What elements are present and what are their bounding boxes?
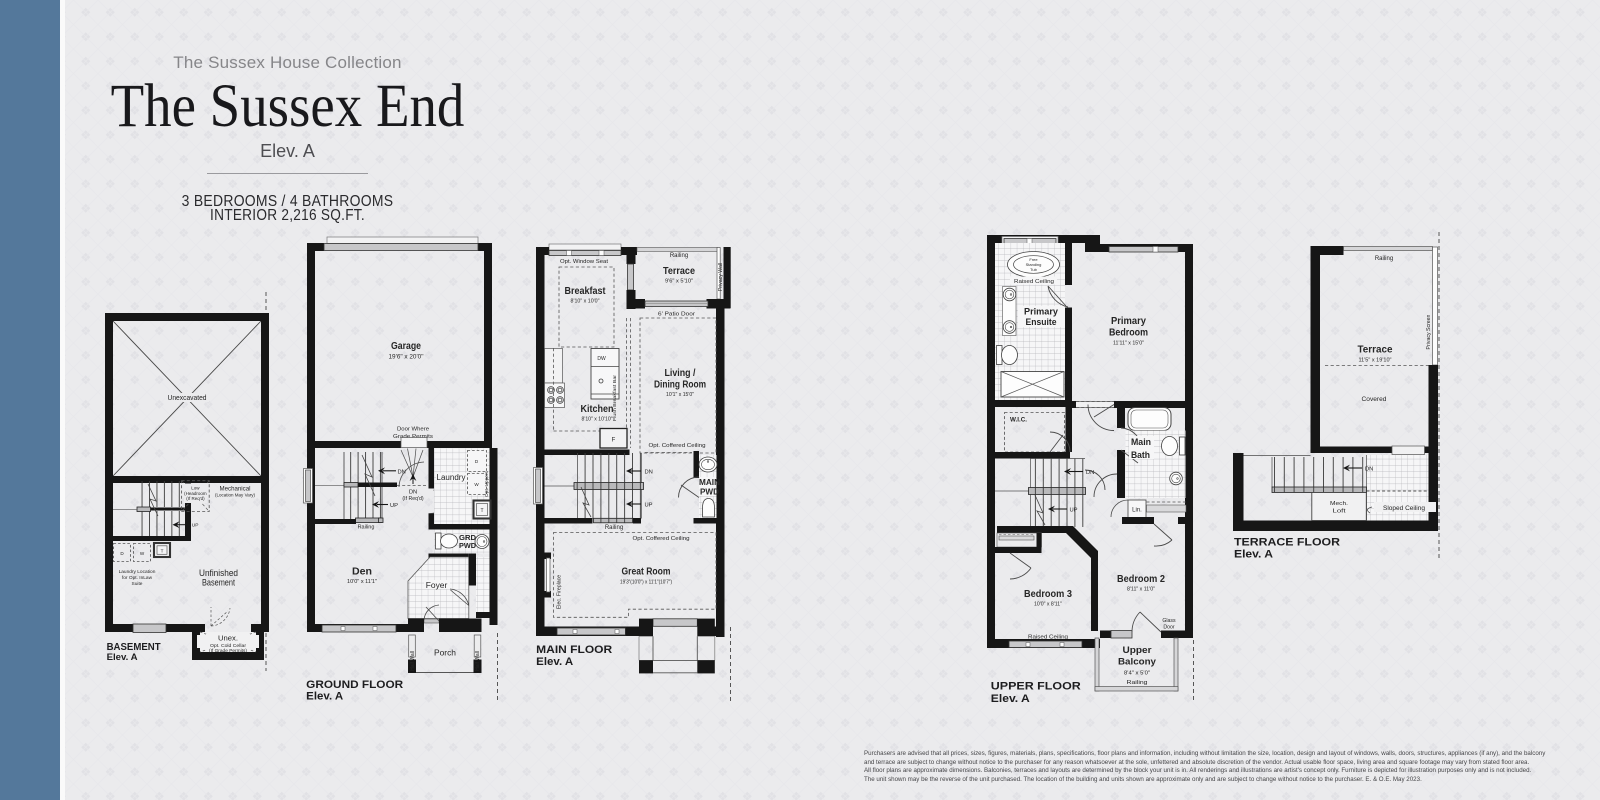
svg-text:DN: DN [645,470,653,476]
svg-text:Half Wall: Half Wall [410,651,416,671]
svg-text:PWD: PWD [700,488,719,497]
svg-text:Lin.: Lin. [1132,508,1142,514]
svg-text:Terrace: Terrace [663,266,695,277]
svg-text:DN: DN [1086,470,1094,476]
svg-text:Low: Low [191,485,200,490]
svg-text:Tub: Tub [1030,267,1038,272]
svg-text:Elev. A: Elev. A [991,693,1030,705]
svg-text:Breakfast: Breakfast [565,286,607,297]
svg-text:Basement: Basement [202,578,235,588]
svg-text:W.I.C.: W.I.C. [1010,417,1027,424]
svg-text:W: W [140,551,145,556]
svg-text:Laundry: Laundry [437,473,466,482]
svg-text:MAIN FLOOR: MAIN FLOOR [536,644,612,656]
svg-text:Living /: Living / [665,368,696,379]
svg-text:Railing: Railing [670,253,688,259]
svg-text:Laundry Location: Laundry Location [119,569,156,575]
svg-text:for Opt. InLaw: for Opt. InLaw [122,575,153,581]
svg-text:Elev. A: Elev. A [1234,549,1273,561]
svg-text:Unex.: Unex. [218,634,238,643]
svg-text:Door: Door [1163,625,1175,631]
svg-text:9'6" x 5'10": 9'6" x 5'10" [665,279,693,285]
svg-text:Half Wall: Half Wall [475,651,481,671]
svg-text:(If Grade Permits): (If Grade Permits) [209,648,247,654]
svg-text:Ensuite: Ensuite [1026,316,1057,327]
svg-text:Raised Ceiling: Raised Ceiling [1014,279,1054,285]
svg-text:Covered: Covered [1362,396,1387,403]
svg-text:Main: Main [1131,437,1151,447]
svg-text:Mech.: Mech. [1330,501,1348,507]
svg-text:Privacy Screen: Privacy Screen [1426,314,1432,349]
svg-text:Elev. A: Elev. A [536,656,573,668]
svg-text:19'3"(10'0") x 11'1"(10'7"): 19'3"(10'0") x 11'1"(10'7") [620,580,672,586]
svg-text:Opt. Window Seat: Opt. Window Seat [560,259,608,265]
svg-text:(Location May Vary): (Location May Vary) [215,493,255,498]
svg-text:Unfinished: Unfinished [199,568,238,578]
svg-text:Opt. Uppers: Opt. Uppers [484,470,490,496]
svg-text:Porch: Porch [434,649,456,658]
svg-text:T: T [161,549,164,554]
svg-text:Elec. Fireplace: Elec. Fireplace [557,575,563,609]
svg-text:8'4" x 5'0": 8'4" x 5'0" [1124,671,1150,677]
svg-text:Upper: Upper [1123,644,1152,655]
svg-text:UP: UP [645,503,653,509]
svg-text:Door Where: Door Where [397,427,429,433]
svg-text:DW: DW [597,356,606,362]
svg-text:Railing: Railing [605,525,623,531]
svg-text:Foyer: Foyer [426,581,448,590]
svg-text:Privacy Wall: Privacy Wall [718,263,724,291]
svg-text:DN: DN [1365,467,1373,473]
svg-text:11'5" x 19'10": 11'5" x 19'10" [1359,358,1392,364]
svg-text:UPPER FLOOR: UPPER FLOOR [991,680,1081,692]
svg-text:Loft: Loft [1333,509,1347,515]
svg-text:GROUND FLOOR: GROUND FLOOR [306,679,403,691]
svg-text:Garage: Garage [391,341,421,352]
svg-text:10'0" x 11'1": 10'0" x 11'1" [347,579,377,585]
svg-text:19'6" x 20'0": 19'6" x 20'0" [389,355,424,361]
svg-text:6' Patio Door: 6' Patio Door [658,312,695,318]
svg-text:Bedroom 3: Bedroom 3 [1024,589,1073,600]
svg-text:Bedroom: Bedroom [1109,328,1148,339]
svg-text:MAIN: MAIN [699,478,720,487]
svg-text:Terrace: Terrace [1358,345,1394,356]
svg-text:Bath: Bath [1131,450,1150,460]
svg-text:Primary: Primary [1111,316,1147,327]
svg-text:PWD: PWD [459,541,476,550]
svg-text:Glass: Glass [1162,618,1176,624]
svg-text:8'11" x 11'0": 8'11" x 11'0" [1127,587,1155,593]
svg-text:(Headroom: (Headroom [184,491,207,496]
svg-text:Great Room: Great Room [622,567,671,578]
svg-text:Den: Den [352,567,372,578]
svg-text:Railing: Railing [1375,256,1393,262]
svg-text:Dining Room: Dining Room [654,380,706,391]
svg-text:8'10" x 10'0": 8'10" x 10'0" [571,299,600,305]
svg-text:Bedroom 2: Bedroom 2 [1117,574,1166,585]
svg-text:11'11" x 15'0": 11'11" x 15'0" [1113,341,1144,347]
svg-text:D: D [120,551,124,556]
svg-text:Suite: Suite [132,581,143,587]
svg-text:Primary: Primary [1024,306,1059,317]
svg-text:UP: UP [1070,508,1078,514]
svg-text:(If Req'd): (If Req'd) [402,496,423,502]
svg-text:F: F [612,438,616,444]
svg-text:Elev. A: Elev. A [306,691,343,703]
svg-text:DN: DN [409,490,417,496]
svg-text:Opt. Coffered Ceiling: Opt. Coffered Ceiling [649,443,706,449]
svg-text:Kitchen: Kitchen [581,404,614,415]
svg-text:10'1" x 15'0": 10'1" x 15'0" [666,392,694,398]
svg-text:W: W [474,482,479,487]
svg-text:Railing: Railing [1127,680,1148,686]
svg-text:T: T [480,508,483,514]
svg-text:Railing: Railing [358,525,375,531]
svg-text:UP: UP [390,503,398,509]
svg-text:DN: DN [398,469,406,475]
svg-text:Balcony: Balcony [1118,656,1157,667]
svg-text:Opt. Coffered Ceiling: Opt. Coffered Ceiling [633,536,690,542]
svg-text:8'10" x 10'10": 8'10" x 10'10" [582,417,613,423]
svg-text:Elev. A: Elev. A [107,652,138,663]
svg-text:(If Req'd): (If Req'd) [186,496,205,501]
svg-text:TERRACE FLOOR: TERRACE FLOOR [1234,536,1340,548]
svg-text:Sloped Ceiling: Sloped Ceiling [1383,505,1426,512]
svg-text:10'0" x 8'11": 10'0" x 8'11" [1034,602,1062,608]
svg-text:Unexcavated: Unexcavated [168,393,207,402]
svg-text:UP: UP [192,523,199,529]
